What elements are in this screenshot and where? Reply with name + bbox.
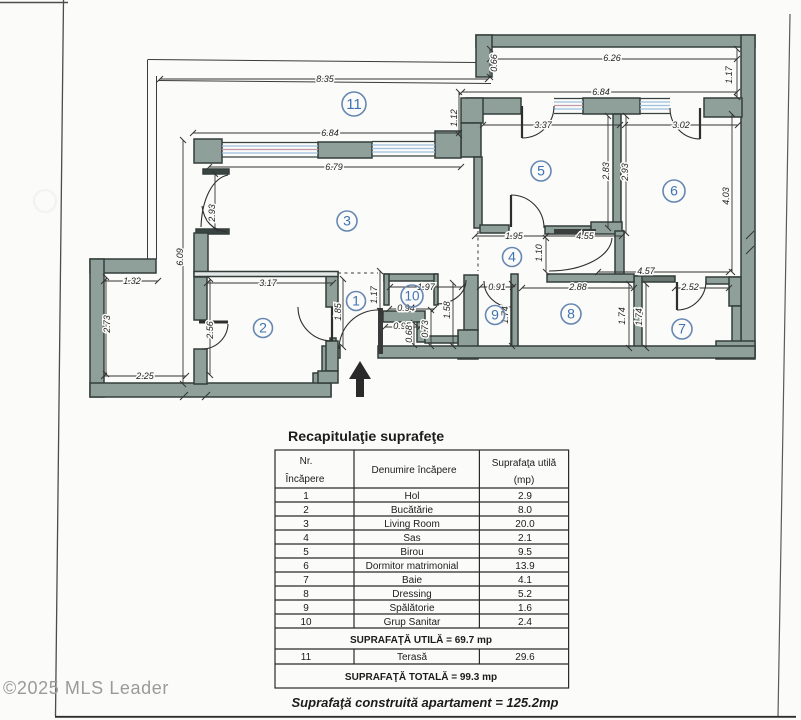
svg-text:Denumire încăpere: Denumire încăpere	[371, 465, 456, 476]
svg-text:2.93: 2.93	[620, 163, 630, 182]
svg-text:3.17: 3.17	[259, 278, 278, 288]
svg-text:Suprafaţa utilă: Suprafaţa utilă	[492, 458, 557, 469]
svg-text:13.9: 13.9	[515, 561, 535, 572]
svg-text:2.52: 2.52	[680, 282, 699, 292]
svg-text:2.1: 2.1	[518, 533, 532, 544]
svg-text:2: 2	[303, 505, 309, 516]
svg-text:8: 8	[567, 306, 575, 322]
svg-text:3: 3	[343, 213, 351, 229]
svg-text:Recapitulaţie suprafeţe: Recapitulaţie suprafeţe	[288, 429, 444, 445]
svg-text:(mp): (mp)	[514, 475, 535, 486]
svg-text:1.12: 1.12	[449, 109, 459, 127]
svg-text:6: 6	[303, 561, 309, 572]
svg-text:1.10: 1.10	[534, 244, 544, 262]
svg-text:6: 6	[670, 183, 678, 199]
svg-text:29.6: 29.6	[515, 652, 535, 663]
svg-text:©2025 MLS Leader: ©2025 MLS Leader	[3, 678, 169, 698]
svg-text:Spălătorie: Spălătorie	[389, 603, 434, 614]
svg-text:1.85: 1.85	[333, 302, 343, 321]
svg-text:1.97: 1.97	[417, 282, 436, 292]
svg-text:Living Room: Living Room	[384, 519, 440, 530]
svg-text:2.25: 2.25	[135, 371, 155, 381]
svg-text:5.2: 5.2	[518, 589, 532, 600]
svg-text:3.02: 3.02	[672, 120, 690, 130]
svg-text:3: 3	[303, 519, 309, 530]
svg-text:6.84: 6.84	[321, 128, 339, 138]
svg-text:0.66: 0.66	[489, 54, 499, 72]
svg-text:1.17: 1.17	[369, 285, 379, 304]
svg-text:Grup Sanitar: Grup Sanitar	[384, 617, 441, 628]
svg-text:1.95: 1.95	[505, 231, 524, 241]
svg-text:11: 11	[346, 96, 362, 113]
svg-text:7: 7	[303, 575, 309, 586]
svg-text:9: 9	[491, 307, 499, 323]
svg-text:0.73: 0.73	[420, 320, 430, 338]
svg-text:6.84: 6.84	[592, 87, 610, 97]
svg-text:1: 1	[303, 491, 309, 502]
svg-text:Hol: Hol	[404, 491, 419, 502]
svg-text:20.0: 20.0	[515, 519, 535, 530]
svg-text:8.35: 8.35	[316, 74, 335, 84]
svg-text:Baie: Baie	[402, 575, 422, 586]
svg-text:SUPRAFAŢĂ UTILĂ = 69.7 mp: SUPRAFAŢĂ UTILĂ = 69.7 mp	[350, 633, 492, 646]
svg-text:2.83: 2.83	[601, 162, 611, 181]
svg-text:Dormitor matrimonial: Dormitor matrimonial	[366, 561, 459, 572]
svg-text:2: 2	[259, 320, 267, 336]
svg-text:2.88: 2.88	[568, 282, 587, 292]
svg-text:1.17: 1.17	[724, 65, 734, 84]
svg-text:11: 11	[301, 652, 312, 663]
svg-text:1.74: 1.74	[634, 308, 644, 326]
svg-text:2.73: 2.73	[102, 315, 112, 334]
svg-text:Sas: Sas	[403, 533, 420, 544]
svg-text:2.4: 2.4	[518, 617, 532, 628]
svg-text:4: 4	[303, 533, 309, 544]
svg-text:2.93: 2.93	[207, 204, 217, 223]
svg-text:9: 9	[303, 603, 309, 614]
svg-text:8.0: 8.0	[518, 505, 532, 516]
svg-text:3.37: 3.37	[534, 120, 553, 130]
svg-text:1.6: 1.6	[518, 603, 532, 614]
svg-text:4.1: 4.1	[518, 575, 532, 586]
svg-text:10: 10	[404, 289, 419, 304]
svg-text:6.79: 6.79	[325, 162, 343, 172]
svg-text:5: 5	[537, 163, 545, 179]
svg-text:1.32: 1.32	[123, 276, 141, 286]
svg-text:5: 5	[303, 547, 309, 558]
svg-text:4.57: 4.57	[637, 266, 656, 276]
svg-text:8: 8	[303, 589, 309, 600]
svg-text:Bucătărie: Bucătărie	[391, 505, 434, 516]
svg-text:SUPRAFAŢĂ TOTALĂ = 99.3 mp: SUPRAFAŢĂ TOTALĂ = 99.3 mp	[345, 670, 497, 683]
svg-text:6.26: 6.26	[603, 53, 621, 63]
svg-text:1: 1	[352, 293, 360, 309]
svg-text:Terasă: Terasă	[397, 652, 427, 663]
svg-text:1.74: 1.74	[617, 307, 627, 325]
svg-text:6.09: 6.09	[175, 248, 185, 266]
svg-text:0.68: 0.68	[404, 325, 414, 343]
svg-text:7: 7	[678, 321, 686, 337]
svg-text:0.91: 0.91	[488, 282, 506, 292]
svg-text:10: 10	[300, 617, 312, 628]
svg-text:4.03: 4.03	[721, 187, 731, 205]
svg-text:9.5: 9.5	[518, 547, 532, 558]
svg-text:Încăpere: Încăpere	[285, 472, 325, 485]
svg-text:2.9: 2.9	[518, 491, 532, 502]
svg-text:1.58: 1.58	[442, 301, 452, 319]
svg-text:Dressing: Dressing	[392, 589, 431, 600]
svg-text:Nr.: Nr.	[300, 456, 313, 467]
svg-text:4.55: 4.55	[576, 231, 595, 241]
svg-text:Suprafaţă construită apartamen: Suprafaţă construită apartament = 125.2m…	[292, 695, 559, 710]
svg-text:4: 4	[508, 249, 516, 265]
svg-text:Birou: Birou	[400, 547, 423, 558]
svg-text:2.56: 2.56	[205, 321, 215, 340]
